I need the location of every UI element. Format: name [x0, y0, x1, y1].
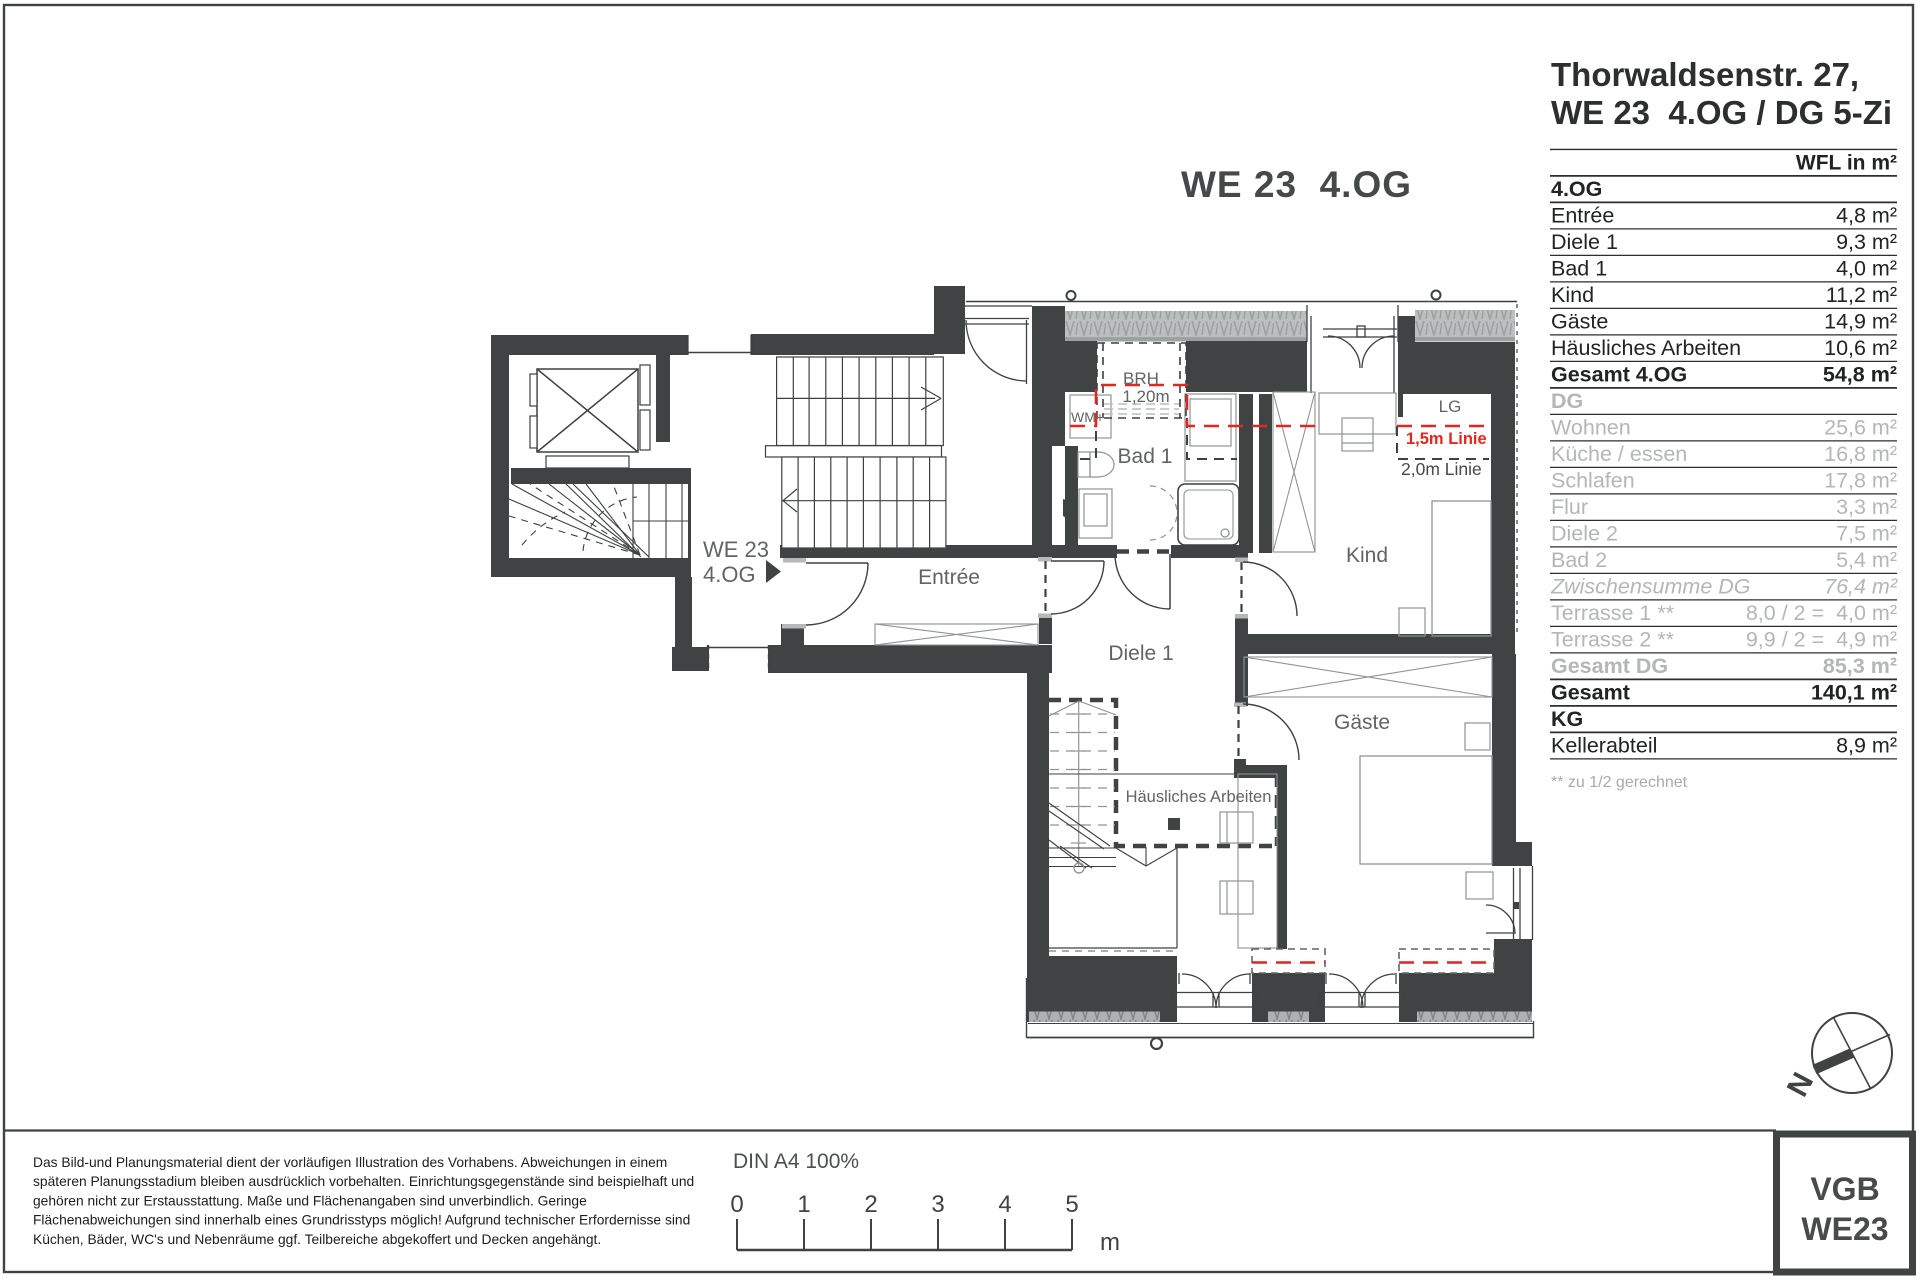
svg-text:Diele 1: Diele 1 [1551, 230, 1618, 254]
svg-text:gehören nicht zur Erstausstatt: gehören nicht zur Erstausstattung. Maße … [33, 1193, 587, 1208]
svg-text:5: 5 [1065, 1191, 1078, 1218]
svg-text:4: 4 [998, 1191, 1011, 1218]
svg-text:m: m [1100, 1229, 1120, 1256]
svg-text:Diele 1: Diele 1 [1108, 642, 1173, 665]
svg-text:85,3 m²: 85,3 m² [1823, 654, 1897, 678]
svg-text:späteren Planungsstadium bleib: späteren Planungsstadium bleiben ausdrüc… [33, 1174, 694, 1189]
svg-text:Entrée: Entrée [918, 566, 980, 589]
svg-text:16,8 m²: 16,8 m² [1824, 442, 1897, 466]
svg-text:Gesamt 4.OG: Gesamt 4.OG [1551, 362, 1687, 386]
svg-text:4.OG: 4.OG [703, 562, 756, 587]
svg-text:Gesamt: Gesamt [1551, 680, 1630, 704]
svg-text:Flächenabweichungen sind inner: Flächenabweichungen sind innerhalb eines… [33, 1213, 690, 1228]
svg-text:DIN A4 100%: DIN A4 100% [733, 1150, 859, 1173]
svg-text:WM+: WM+ [1071, 409, 1104, 425]
svg-text:Gäste: Gäste [1551, 309, 1608, 333]
svg-text:Zwischensumme DG: Zwischensumme DG [1550, 574, 1751, 598]
svg-text:8,0 / 2 = 4,0 m²: 8,0 / 2 = 4,0 m² [1746, 601, 1897, 625]
svg-text:54,8 m²: 54,8 m² [1823, 362, 1897, 386]
svg-text:8,9 m²: 8,9 m² [1836, 733, 1897, 757]
svg-text:17,8 m²: 17,8 m² [1824, 468, 1897, 492]
svg-text:VGB: VGB [1810, 1171, 1879, 1207]
svg-text:4,0 m²: 4,0 m² [1836, 256, 1897, 280]
svg-text:Thorwaldsenstr. 27,: Thorwaldsenstr. 27, [1551, 56, 1859, 93]
svg-text:Kind: Kind [1551, 283, 1594, 307]
svg-text:2: 2 [864, 1191, 877, 1218]
svg-text:9,3 m²: 9,3 m² [1836, 230, 1897, 254]
svg-text:0: 0 [730, 1191, 743, 1218]
svg-text:Entrée: Entrée [1551, 203, 1614, 227]
svg-text:Terrasse 2 **: Terrasse 2 ** [1551, 627, 1675, 651]
svg-text:1: 1 [797, 1191, 810, 1218]
svg-text:25,6 m²: 25,6 m² [1824, 415, 1897, 439]
svg-text:Bad 1: Bad 1 [1551, 256, 1607, 280]
svg-text:14,9 m²: 14,9 m² [1824, 309, 1897, 333]
svg-text:Küchen, Bäder, WC's und Nebenr: Küchen, Bäder, WC's und Nebenräume ggf. … [33, 1232, 601, 1247]
svg-text:KG: KG [1551, 707, 1583, 731]
svg-text:WFL in m²: WFL in m² [1796, 151, 1897, 174]
svg-text:Terrasse 1 **: Terrasse 1 ** [1551, 601, 1675, 625]
svg-text:WE 23 4.OG: WE 23 4.OG [1181, 164, 1412, 205]
svg-text:WE23: WE23 [1801, 1211, 1888, 1247]
svg-text:76,4 m²: 76,4 m² [1824, 574, 1898, 598]
svg-text:Flur: Flur [1551, 495, 1588, 519]
svg-text:1,5m Linie: 1,5m Linie [1406, 430, 1487, 448]
svg-text:11,2 m²: 11,2 m² [1826, 283, 1897, 307]
svg-text:Kellerabteil: Kellerabteil [1551, 733, 1657, 757]
svg-text:2,0m Linie: 2,0m Linie [1401, 459, 1482, 479]
svg-text:Das Bild-und Planungsmaterial: Das Bild-und Planungsmaterial dient der … [33, 1155, 667, 1170]
svg-text:Häusliches Arbeiten: Häusliches Arbeiten [1551, 336, 1741, 360]
svg-text:Kind: Kind [1346, 544, 1388, 567]
svg-text:Diele 2: Diele 2 [1551, 521, 1618, 545]
svg-text:Küche / essen: Küche / essen [1551, 442, 1687, 466]
svg-text:4.OG: 4.OG [1551, 177, 1602, 201]
svg-text:BRH: BRH [1123, 369, 1159, 388]
svg-text:Häusliches Arbeiten: Häusliches Arbeiten [1126, 788, 1272, 806]
svg-text:3,3 m²: 3,3 m² [1836, 495, 1897, 519]
svg-text:140,1 m²: 140,1 m² [1811, 680, 1897, 704]
svg-text:Wohnen: Wohnen [1551, 415, 1631, 439]
svg-text:WE 23 4.OG / DG 5-Zi: WE 23 4.OG / DG 5-Zi [1551, 94, 1892, 131]
svg-text:10,6 m²: 10,6 m² [1824, 336, 1897, 360]
svg-text:Bad 1: Bad 1 [1118, 445, 1173, 468]
svg-text:LG: LG [1439, 397, 1462, 416]
svg-text:3: 3 [931, 1191, 944, 1218]
svg-text:Gesamt DG: Gesamt DG [1551, 654, 1668, 678]
svg-text:DG: DG [1551, 389, 1583, 413]
svg-text:** zu 1/2 gerechnet: ** zu 1/2 gerechnet [1551, 774, 1688, 791]
svg-text:Gäste: Gäste [1334, 711, 1390, 734]
svg-text:5,4 m²: 5,4 m² [1836, 548, 1897, 572]
svg-text:4,8 m²: 4,8 m² [1836, 203, 1897, 227]
svg-text:1,20m: 1,20m [1122, 387, 1169, 406]
svg-text:Bad 2: Bad 2 [1551, 548, 1607, 572]
svg-text:Schlafen: Schlafen [1551, 468, 1635, 492]
svg-text:WE 23: WE 23 [703, 537, 769, 562]
svg-text:7,5 m²: 7,5 m² [1836, 521, 1897, 545]
svg-text:9,9 / 2 = 4,9 m²: 9,9 / 2 = 4,9 m² [1746, 627, 1897, 651]
